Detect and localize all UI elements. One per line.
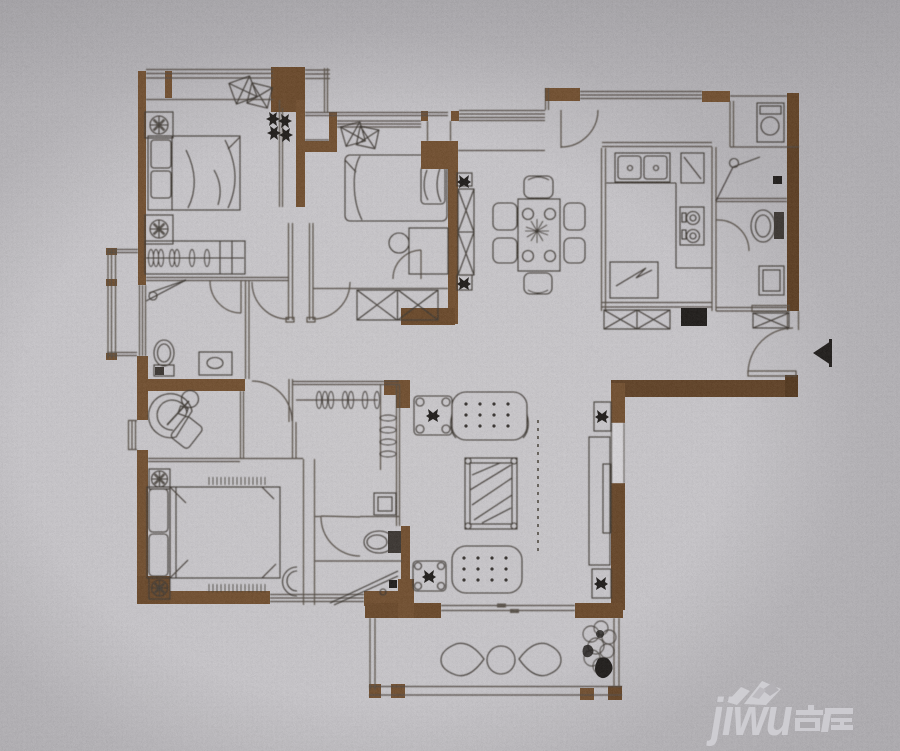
svg-text:jiwu: jiwu [706, 688, 792, 747]
